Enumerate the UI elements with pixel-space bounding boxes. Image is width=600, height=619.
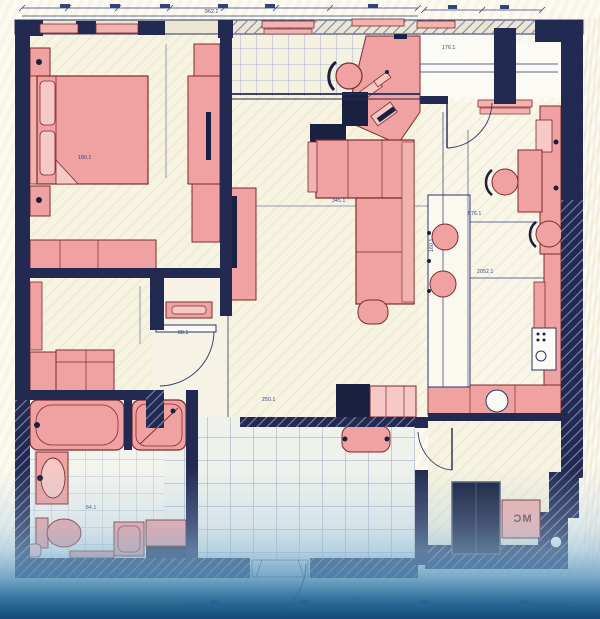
wall-stub-hatch <box>146 390 164 428</box>
wall-tub-divider <box>124 398 132 450</box>
toilet-tank <box>36 518 48 548</box>
wall-right-hatch <box>561 200 583 430</box>
radiator-inner <box>172 306 206 314</box>
sofa-back <box>402 142 414 302</box>
dark-plinth <box>146 546 186 558</box>
handle-dot <box>554 140 559 145</box>
dim-number-blob <box>368 4 378 8</box>
bed-pillow <box>40 81 55 125</box>
bath-cabinet <box>146 520 186 546</box>
window-sill-radiator <box>352 19 404 26</box>
wall-left-hatch <box>15 390 30 578</box>
burner-dot <box>543 339 546 342</box>
dining-table <box>518 150 542 212</box>
window-sill-radiator <box>417 21 455 28</box>
wardrobe <box>192 184 220 242</box>
floor-balcony-right <box>420 33 496 98</box>
floor-plan-drawing <box>0 0 600 619</box>
wall-living-hall-hatch <box>240 417 418 427</box>
wall-step-hatch <box>561 428 583 478</box>
bed-headboard <box>30 76 37 184</box>
burner-dot <box>537 339 540 342</box>
dining-chair <box>492 169 518 195</box>
bar-stool <box>430 271 456 297</box>
knob-dot <box>427 231 431 235</box>
burner-dot <box>543 333 546 336</box>
wall-kitchen-top <box>420 96 448 104</box>
hall-bench <box>342 426 390 452</box>
counter-bump <box>534 282 545 330</box>
bedroom-cabinet-row <box>30 240 156 270</box>
desk-dot <box>385 70 389 74</box>
storage-mc-box <box>502 500 540 538</box>
kitchen-shelf <box>480 108 530 114</box>
bar-stool <box>432 224 458 250</box>
dim-number-blob <box>265 4 275 8</box>
wall-bath-right <box>186 390 198 558</box>
wall-hall-right <box>415 417 428 428</box>
wall-pier <box>218 20 233 38</box>
dim-number-blob <box>520 600 529 604</box>
washing-machine <box>114 522 144 556</box>
countertop-appliance <box>536 120 552 152</box>
dim-number-blob <box>500 5 509 9</box>
wardrobe <box>188 76 220 184</box>
wall-hall-right <box>415 470 428 565</box>
wall-pier <box>138 21 165 35</box>
bedroom-door-leaf <box>156 325 216 332</box>
tv-screen <box>232 196 237 268</box>
hall-cabinet <box>370 386 416 417</box>
faucet-dot <box>34 422 40 428</box>
dim-number-blob <box>110 4 120 8</box>
dim-number-blob <box>420 600 429 604</box>
sofa-chaise <box>358 300 388 324</box>
dim-number-blob <box>300 600 309 604</box>
window-sill-radiator <box>40 24 78 33</box>
sofa-armrest <box>308 142 317 192</box>
bench-dot <box>385 437 390 442</box>
dim-number-blob <box>210 600 219 604</box>
wall-room2-right <box>150 273 164 330</box>
shelf-block <box>342 92 368 126</box>
hall-closet-block <box>336 384 370 417</box>
wall-storage-top <box>428 413 568 421</box>
dim-number-blob <box>160 4 170 8</box>
handle-dot <box>554 186 559 191</box>
wall-pier <box>76 21 96 34</box>
lamp-dot <box>36 59 42 65</box>
kids-bed <box>56 350 114 392</box>
wall-bottom-hatch <box>15 558 250 578</box>
floor-corner-nook <box>514 42 561 98</box>
window-sill-radiator <box>264 29 312 34</box>
toilet-bowl <box>47 519 81 547</box>
entrance-threshold <box>252 560 308 577</box>
window-sill-radiator <box>262 21 314 28</box>
washbasin <box>41 458 65 498</box>
bath-bench <box>70 551 114 558</box>
wardrobe-slider <box>206 112 211 160</box>
wall-kitchen-chunk <box>494 28 516 104</box>
kitchen-sink <box>486 390 508 412</box>
dim-number-blob <box>448 5 457 9</box>
faucet-dot <box>37 475 43 481</box>
dim-number-blob <box>60 4 70 8</box>
wall-shelf <box>30 282 42 350</box>
lamp-dot <box>36 197 42 203</box>
wall-bottom-hatch <box>310 558 418 578</box>
knob-dot <box>427 289 431 293</box>
knob-dot <box>427 259 431 263</box>
window-sill-radiator <box>96 24 138 33</box>
dining-chair <box>536 221 562 247</box>
sofa-main <box>316 140 414 198</box>
wall-step-hatch <box>549 472 579 518</box>
bed-pillow <box>40 131 55 175</box>
kids-desk <box>30 352 56 392</box>
dim-number-blob <box>218 4 228 8</box>
wall-bedroom-bottom <box>15 268 222 278</box>
vent-circle <box>550 536 562 548</box>
shower-drain <box>171 409 176 414</box>
burner-dot <box>537 333 540 336</box>
floor-plan-canvas: MC 962.1176.1345.1876.12052.1250.188.184… <box>0 0 600 619</box>
bench-dot <box>343 437 348 442</box>
office-chair <box>336 63 362 89</box>
